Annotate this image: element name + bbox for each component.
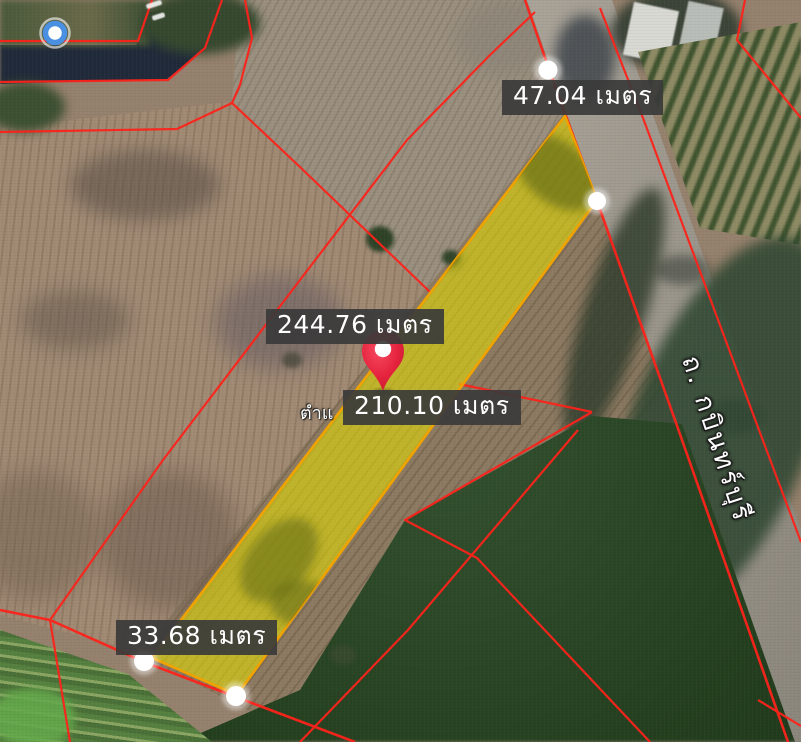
measurement-label-right: 210.10 เมตร [343,390,521,425]
white-dot-marker-icon[interactable] [584,188,610,214]
partial-map-label: ตำแ [300,398,333,427]
satellite-map-canvas[interactable]: ตำแ ถ. กบินทร์บุรี 47.04 เมตร 244.76 เมต… [0,0,801,742]
measurement-label-bottom: 33.68 เมตร [116,620,277,655]
blue-location-dot-icon [41,19,70,48]
measurement-label-top: 47.04 เมตร [502,80,663,115]
white-dot-marker-icon[interactable] [222,682,250,710]
measurement-label-left: 244.76 เมตร [266,309,444,344]
